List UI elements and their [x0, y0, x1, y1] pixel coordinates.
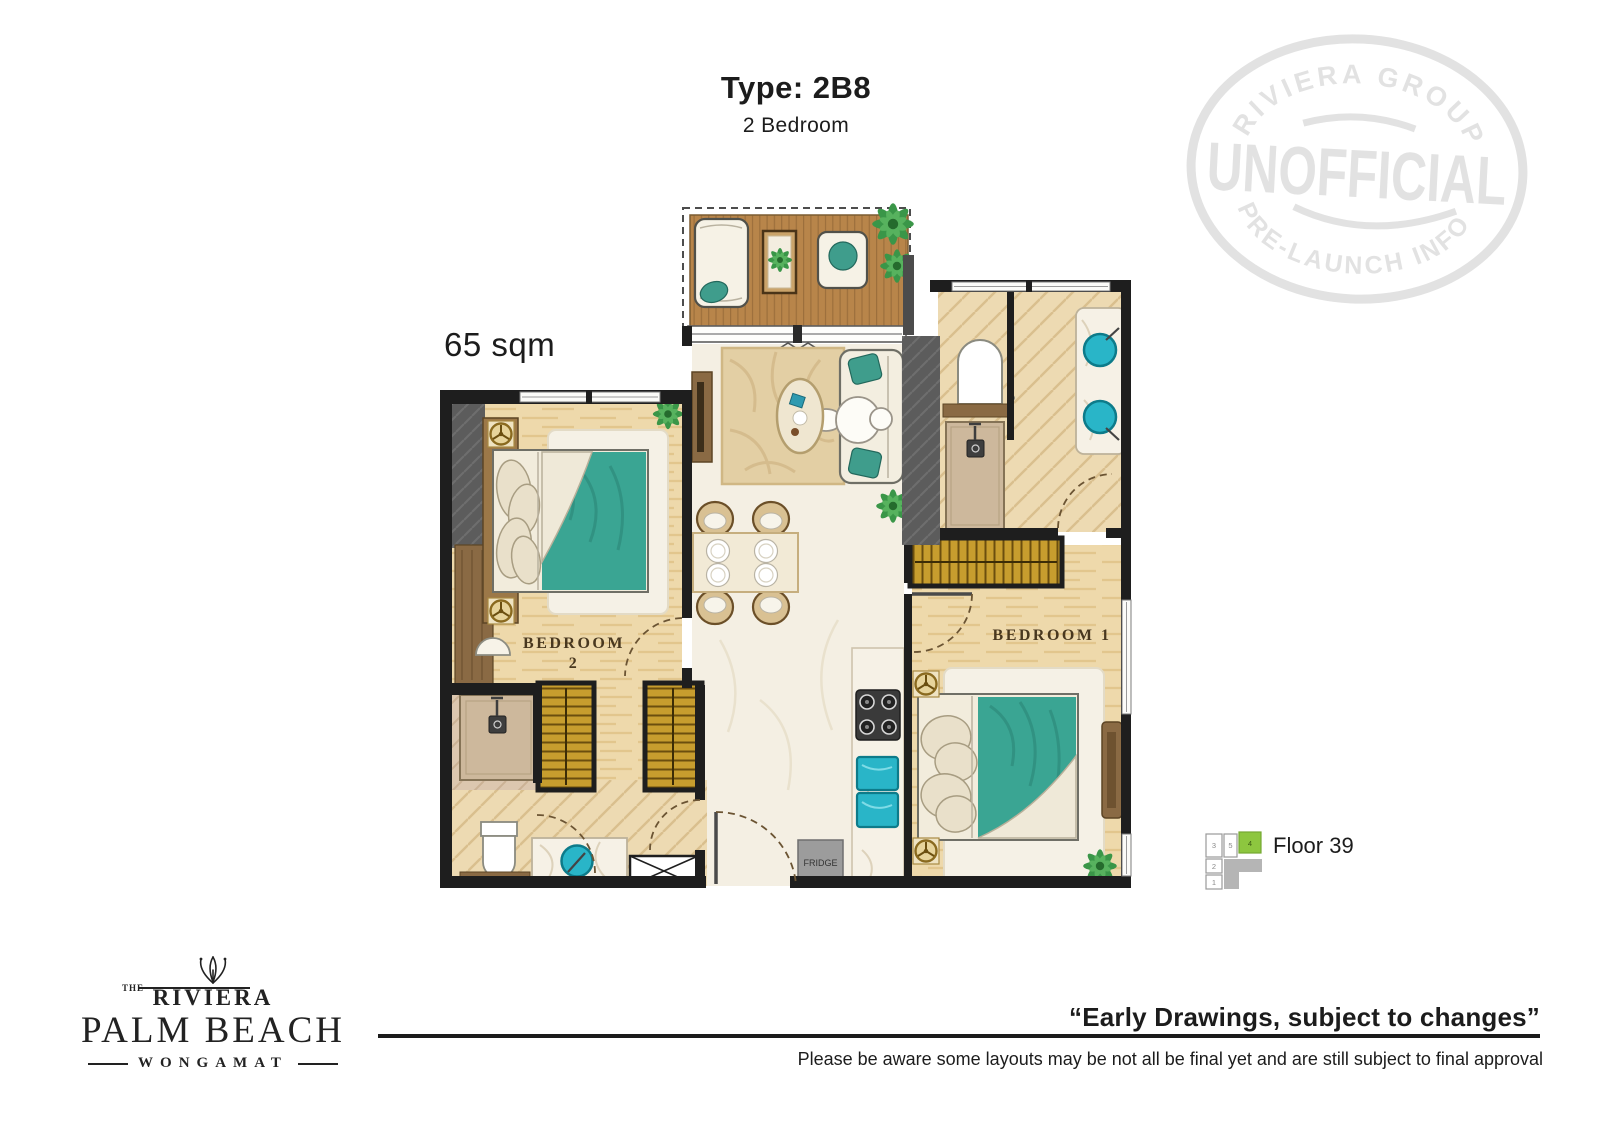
wall-lamp-icon	[488, 421, 514, 447]
unit-cell-label: 2	[1212, 862, 1216, 871]
shower-drain-icon	[967, 440, 984, 457]
palm-flourish-icon	[190, 956, 236, 984]
window	[1122, 600, 1131, 714]
kitchen-sink-icon	[857, 757, 898, 790]
kitchen	[852, 648, 904, 886]
unit-cell-label: 1	[1212, 878, 1216, 887]
bedroom1-label: BEDROOM 1	[993, 627, 1112, 644]
dining-table	[693, 533, 798, 592]
window	[952, 281, 1110, 292]
chair-cushion	[829, 242, 857, 270]
sofa-pillow	[848, 447, 883, 479]
unit-cell-label: 5	[1228, 841, 1232, 850]
bedroom2-label-number: 2	[569, 655, 580, 672]
footer-disclaimer: Please be aware some layouts may be not …	[798, 1049, 1543, 1070]
unit-cell-label: 4	[1248, 839, 1252, 848]
shower-drain-icon	[489, 716, 506, 733]
logo-line2: PALM BEACH	[62, 1011, 364, 1051]
unofficial-stamp: RIVIERA GROUP UNOFFICIAL PRE-LAUNCH INFO	[1184, 30, 1529, 307]
core-shape	[1224, 859, 1262, 889]
wall-lamp-icon	[488, 598, 514, 624]
logo-dash	[88, 1063, 128, 1065]
brand-logo: THE RIVIERA PALM BEACH WONGAMAT	[62, 956, 364, 1072]
logo-rule	[138, 987, 250, 989]
floor-indicator-icon: 3 5 4 2 1	[1206, 832, 1262, 889]
fridge-label: FRIDGE	[803, 858, 837, 868]
page: { "header": { "title": "Type: 2B8", "sub…	[0, 0, 1600, 1126]
wall-lamp-icon	[913, 671, 939, 697]
footer-quote: “Early Drawings, subject to changes”	[1069, 1002, 1540, 1033]
vanity1	[1076, 308, 1126, 454]
bedroom2-label: BEDROOM	[523, 635, 625, 652]
window	[520, 391, 660, 403]
window	[1122, 834, 1131, 876]
plant-icon	[872, 203, 914, 245]
service-shaft	[902, 336, 940, 545]
wall-lamp-icon	[913, 838, 939, 864]
plant-icon	[768, 248, 792, 272]
unit-cell-label: 3	[1212, 841, 1216, 850]
sink-icon	[1084, 401, 1116, 433]
bath1-shelf	[943, 404, 1010, 417]
footer-divider	[378, 1034, 1540, 1038]
shower2	[460, 695, 537, 780]
logo-line3: WONGAMAT	[138, 1055, 288, 1072]
accent-wall	[452, 397, 485, 548]
sink-icon	[1084, 334, 1116, 366]
logo-dash	[298, 1063, 338, 1065]
kitchen-sink-icon	[857, 793, 898, 827]
logo-brand-name: RIVIERA	[153, 985, 274, 1010]
